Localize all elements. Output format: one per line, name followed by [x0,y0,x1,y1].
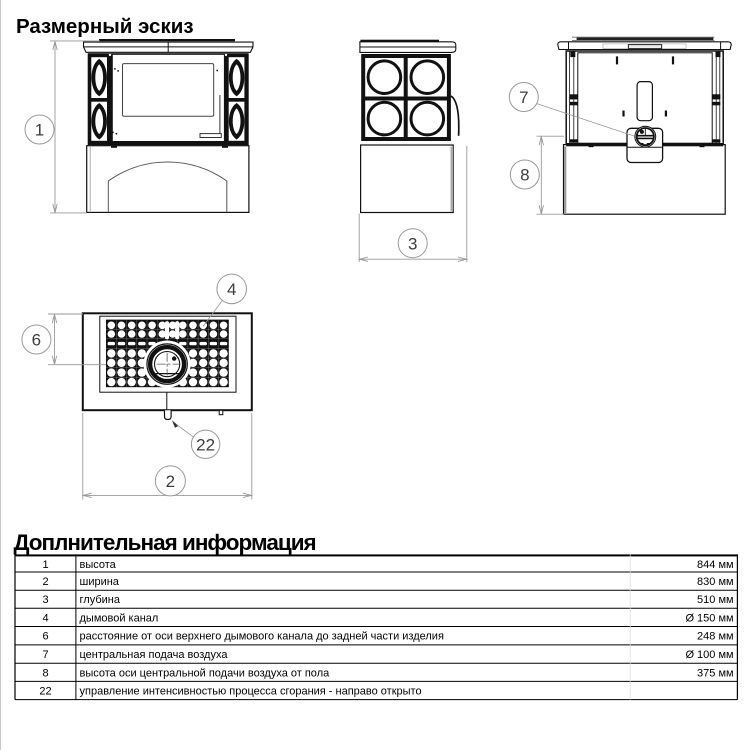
svg-text:1: 1 [42,559,48,571]
svg-text:7: 7 [42,649,48,661]
svg-text:дымовой канал: дымовой канал [80,612,159,624]
svg-text:расстояние от оси верхнего дым: расстояние от оси верхнего дымового кана… [80,631,444,643]
svg-text:управление интенсивностью проц: управление интенсивностью процесса сгора… [80,686,422,698]
svg-text:высота: высота [80,559,117,571]
svg-text:2: 2 [42,576,48,588]
svg-text:3: 3 [42,594,48,606]
svg-text:22: 22 [39,686,51,698]
svg-text:8: 8 [520,166,529,185]
svg-text:ширина: ширина [80,576,120,588]
svg-text:830 мм: 830 мм [697,576,734,588]
svg-text:8: 8 [42,667,48,679]
svg-text:844 мм: 844 мм [697,559,734,571]
svg-text:высота оси центральной подачи: высота оси центральной подачи воздуха от… [80,667,331,679]
svg-text:3: 3 [408,234,417,253]
svg-text:1: 1 [35,121,44,140]
svg-text:Ø 150 мм: Ø 150 мм [685,612,733,624]
svg-text:510 мм: 510 мм [697,594,734,606]
svg-text:центральная подача воздуха: центральная подача воздуха [80,649,229,661]
svg-text:6: 6 [42,631,48,643]
svg-text:6: 6 [32,331,41,350]
svg-text:22: 22 [196,435,215,454]
svg-text:248 мм: 248 мм [697,631,734,643]
svg-text:4: 4 [42,612,48,624]
svg-text:375 мм: 375 мм [697,667,734,679]
svg-text:2: 2 [166,472,175,491]
svg-text:7: 7 [519,88,528,107]
svg-text:глубина: глубина [80,594,121,606]
svg-text:Доплнительная информация: Доплнительная информация [14,530,316,555]
svg-text:Ø 100 мм: Ø 100 мм [685,649,733,661]
svg-text:Размерный эскиз: Размерный эскиз [16,15,194,38]
svg-text:4: 4 [227,280,236,299]
